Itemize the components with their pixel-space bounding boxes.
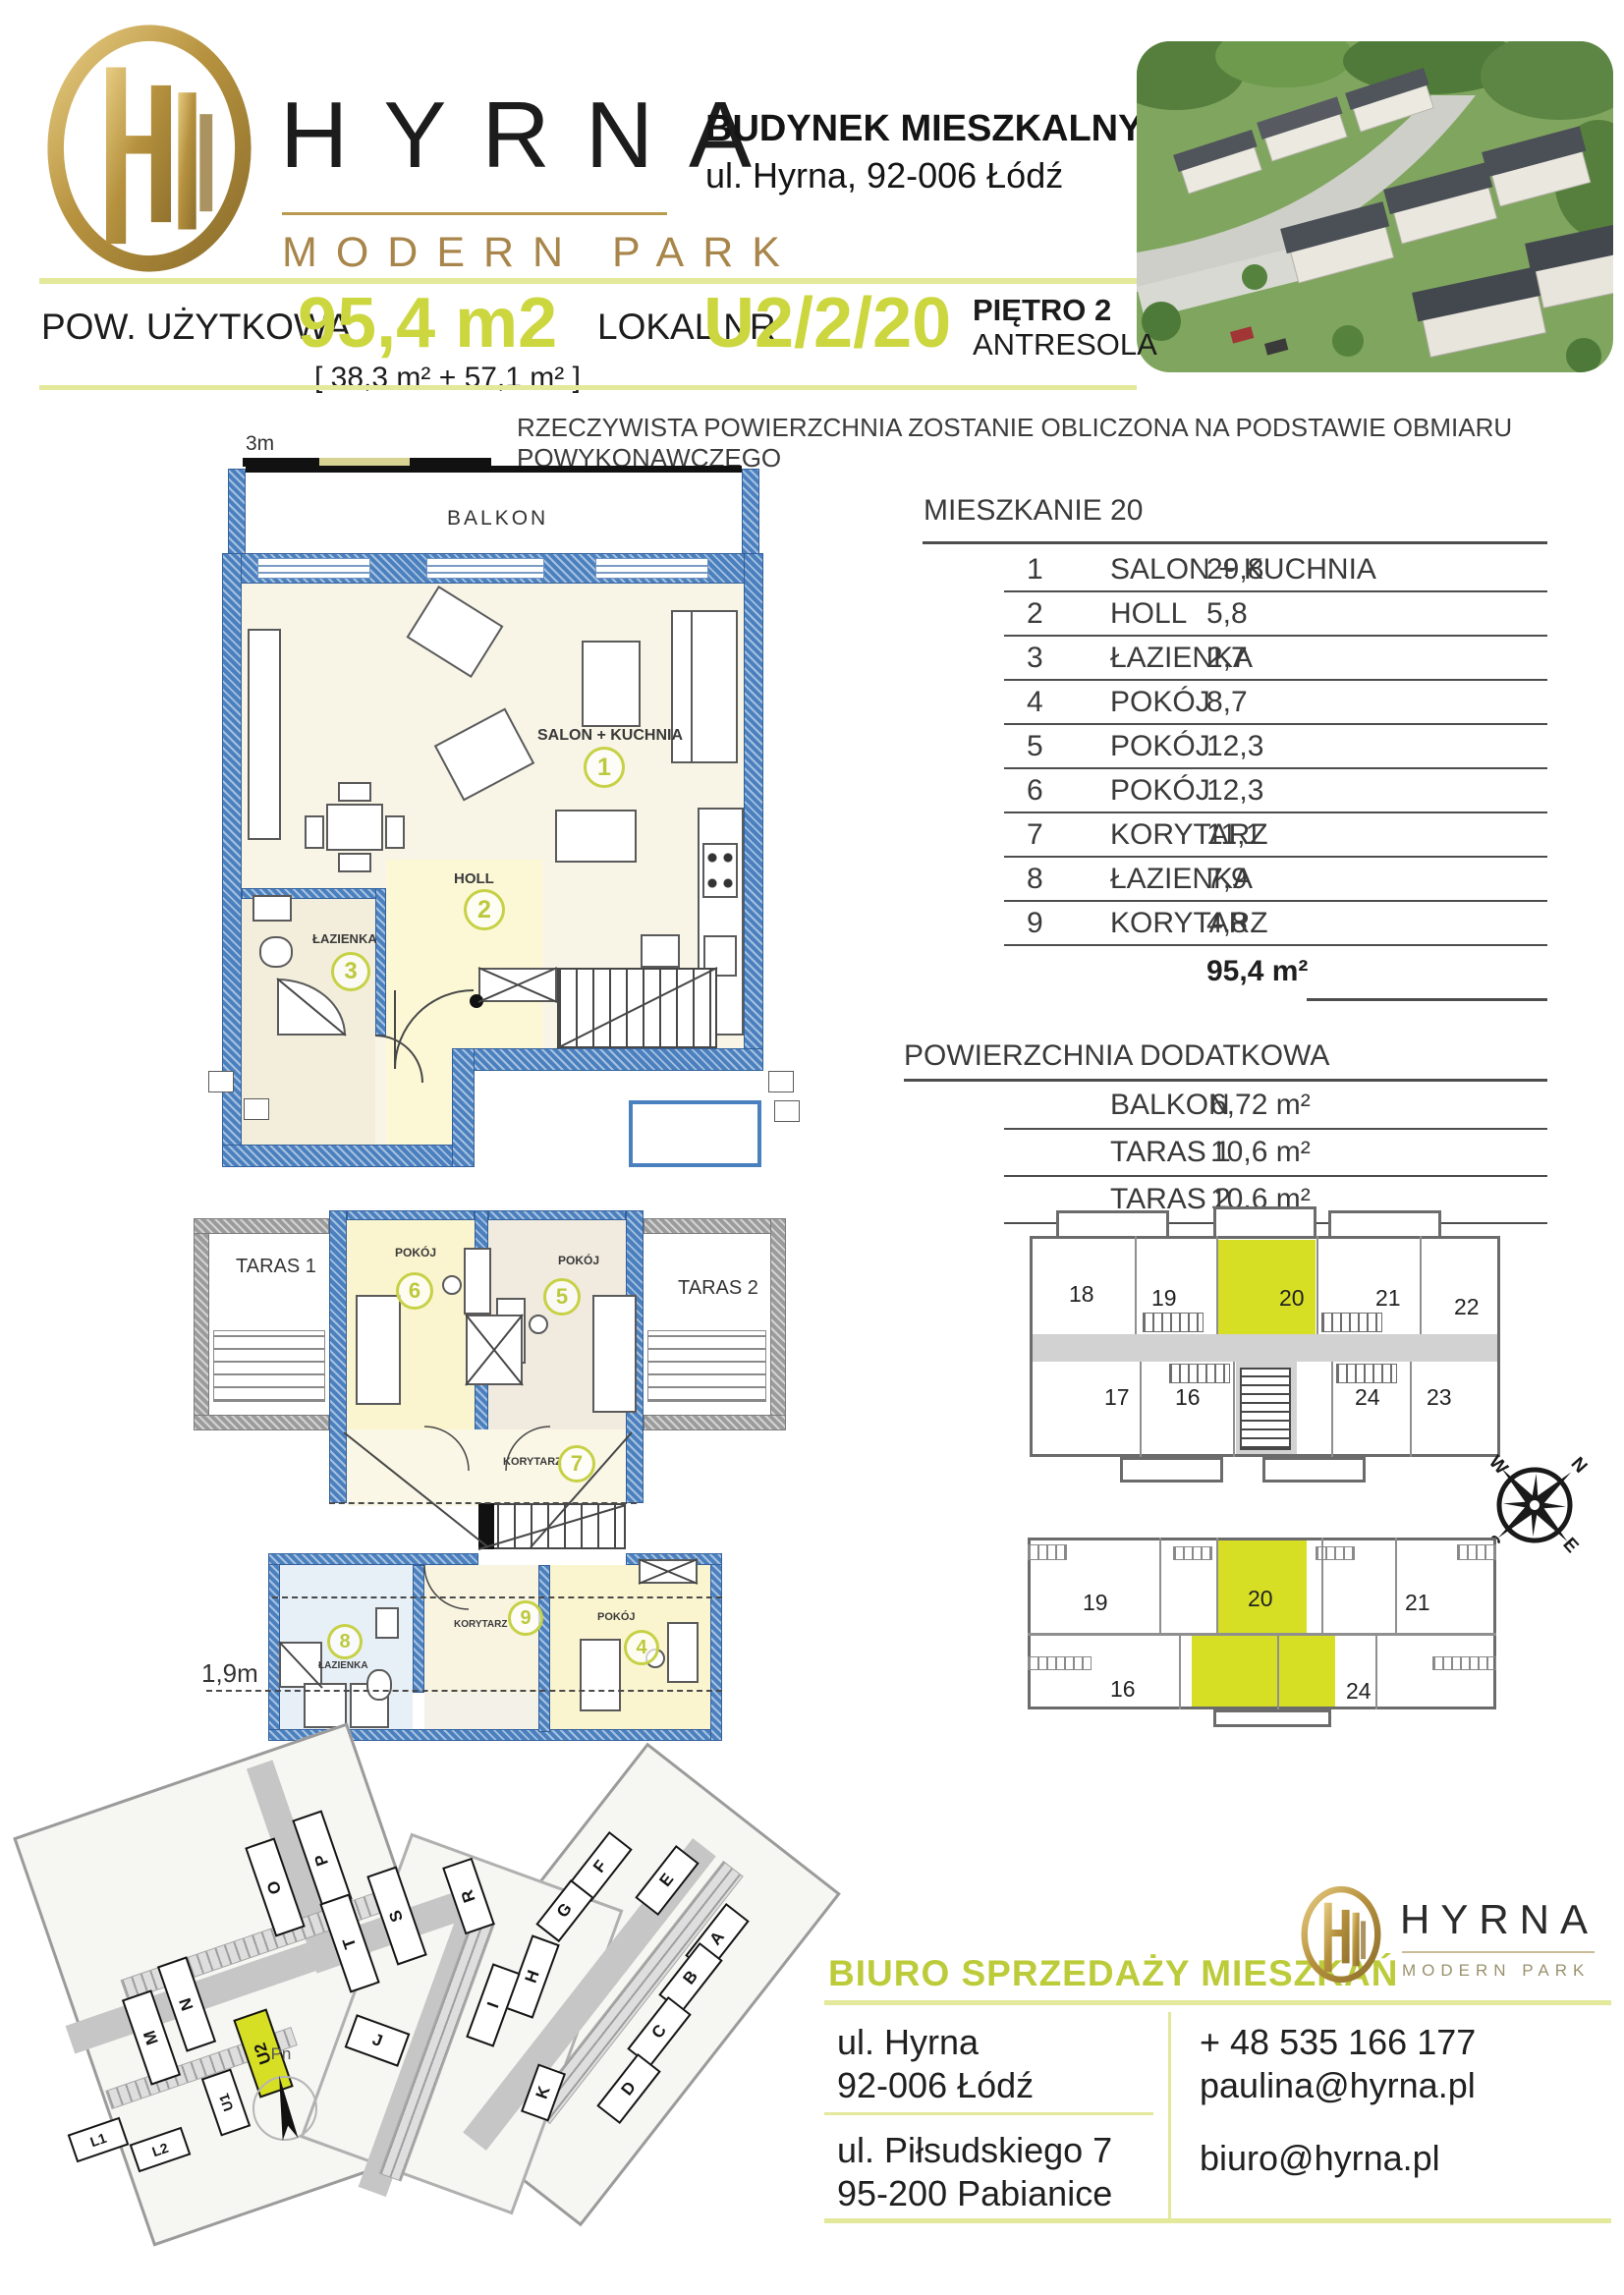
washbasin — [252, 895, 292, 922]
scalebar-label: 3m — [246, 432, 274, 456]
extra-area: 6,72 m² — [1210, 1089, 1311, 1122]
room-number: 2 — [464, 889, 505, 930]
table-rule — [1004, 856, 1547, 858]
section-line — [329, 1502, 637, 1504]
stair-landing — [478, 968, 557, 1002]
desk — [464, 1248, 491, 1315]
window — [257, 558, 370, 579]
row-area: 4,8 — [1206, 907, 1248, 940]
divider-top — [39, 278, 1137, 284]
korytarz7-label: KORYTARZ — [503, 1456, 562, 1468]
contact-email-paulina: paulina@hyrna.pl — [1200, 2065, 1476, 2106]
unit-number: 24 — [1346, 1678, 1372, 1705]
unit-stairs — [1143, 1313, 1204, 1332]
balkon-label: BALKON — [447, 507, 548, 531]
lazienka8-label: ŁAZIENKA — [318, 1660, 368, 1671]
chair — [338, 853, 371, 872]
row-area: 8,7 — [1206, 686, 1248, 719]
unit-number: 17 — [1104, 1384, 1130, 1411]
table-rule — [1004, 944, 1547, 946]
divider-bottom — [39, 385, 1137, 390]
partition — [1179, 1636, 1181, 1709]
partition — [1140, 1362, 1142, 1457]
partition — [1420, 1236, 1422, 1334]
mid-wall — [1028, 1633, 1496, 1636]
room-number: 8 — [327, 1624, 363, 1659]
row-name: POKÓJ — [1110, 686, 1210, 719]
table-rule — [904, 1079, 1547, 1082]
row-area: 7,9 — [1206, 863, 1248, 896]
pokoj4-label: POKÓJ — [597, 1611, 636, 1623]
table-total: 95,4 m² — [1206, 955, 1308, 988]
unit-number: 23 — [1427, 1384, 1452, 1411]
table-rule — [1004, 767, 1547, 769]
row-no: 8 — [1027, 863, 1043, 896]
stairwell-floor — [424, 1693, 538, 1729]
unit20-highlight — [1192, 1633, 1335, 1707]
unit-stairs — [1169, 1364, 1230, 1383]
row-no: 5 — [1027, 730, 1043, 763]
unit-number: 18 — [1069, 1281, 1094, 1308]
contact-address1-line2: 92-006 Łódź — [837, 2065, 1034, 2106]
north-label: Pn — [271, 2044, 292, 2063]
wardrobe — [466, 1315, 523, 1385]
wall — [194, 1218, 209, 1430]
footer-brand-tagline: MODERN PARK — [1402, 1961, 1590, 1981]
bed — [356, 1295, 401, 1405]
partition — [1375, 1636, 1377, 1709]
contact-rule-bottom — [824, 2218, 1611, 2223]
wardrobe — [639, 1559, 698, 1584]
room-number: 6 — [396, 1272, 433, 1310]
partition — [1216, 1538, 1218, 1633]
table-rule — [1004, 723, 1547, 725]
sideboard — [248, 629, 281, 840]
row-area: 12,3 — [1206, 774, 1263, 808]
balcony-railing — [1457, 1544, 1496, 1560]
unit-number: 24 — [1355, 1384, 1380, 1411]
coffee-table — [555, 810, 637, 863]
row-area: 29,8 — [1206, 553, 1263, 587]
holl-label: HOLL — [454, 870, 494, 887]
brand-tagline: MODERN PARK — [282, 229, 799, 277]
lazienka-label: ŁAZIENKA — [312, 931, 377, 946]
footer-logo — [1299, 1884, 1383, 1985]
table-rule — [1004, 1175, 1547, 1177]
floorplan-sheet: { "brand": {"name": "HYRNA", "tagline": … — [0, 0, 1624, 2295]
drain-box — [768, 1071, 794, 1092]
taras1-label: TARAS 1 — [236, 1256, 316, 1278]
partition — [1216, 1236, 1218, 1334]
balcony-tab — [1120, 1457, 1223, 1483]
contact-rule-top — [824, 2000, 1611, 2005]
window — [426, 558, 544, 579]
unit-number: 19 — [1083, 1590, 1108, 1616]
apartment-table-title: MIESZKANIE 20 — [924, 494, 1143, 528]
footer-brand-name: HYRNA — [1400, 1896, 1598, 1943]
site-block: L1 — [68, 2117, 130, 2163]
holl-floor — [386, 1048, 452, 1145]
balkon-edge — [246, 466, 742, 473]
unit-stairs — [1321, 1313, 1382, 1332]
row-area: 12,3 — [1206, 730, 1263, 763]
height-line — [206, 1690, 722, 1692]
row-area: 11,1 — [1206, 818, 1261, 852]
pokoj6-label: POKÓJ — [395, 1246, 436, 1259]
washbasin — [375, 1607, 399, 1639]
dining-table — [326, 804, 383, 851]
unit-number: 21 — [1405, 1590, 1430, 1616]
toilet — [366, 1669, 392, 1701]
wall — [228, 469, 246, 565]
room-number: 7 — [558, 1445, 595, 1483]
taras2-label: TARAS 2 — [678, 1277, 758, 1300]
desk — [667, 1622, 699, 1683]
row-no: 2 — [1027, 597, 1043, 631]
partition — [1159, 1538, 1161, 1633]
hyrna-logo-icon — [41, 20, 257, 277]
building-address: ul. Hyrna, 92-006 Łódź — [705, 155, 1063, 196]
balcony-tab — [1213, 1206, 1316, 1240]
stairs — [1240, 1368, 1291, 1450]
wall — [488, 1210, 626, 1220]
table-rule — [1004, 590, 1547, 592]
partition — [1410, 1362, 1412, 1457]
contact-phone: + 48 535 166 177 — [1200, 2022, 1476, 2063]
floor-label: PIĘTRO 2 — [973, 293, 1111, 328]
stairs — [557, 968, 717, 1048]
wall — [329, 1210, 347, 1503]
room-number: 9 — [508, 1600, 543, 1636]
aerial-photo-illustration — [1137, 41, 1613, 372]
corridor — [1033, 1334, 1497, 1362]
balcony-tab — [1262, 1457, 1366, 1483]
chair — [385, 815, 405, 849]
table-rule — [1004, 812, 1547, 813]
footer-brand-rule — [1402, 1951, 1595, 1953]
extra-table-title: POWIERZCHNIA DODATKOWA — [904, 1039, 1329, 1073]
wall — [268, 1553, 478, 1565]
north-arrow-icon: Pn — [244, 2042, 326, 2150]
holl-floor — [386, 860, 542, 1048]
balcony-railing — [1432, 1656, 1496, 1670]
chair — [305, 815, 324, 849]
room-number: 5 — [543, 1278, 581, 1315]
row-area: 2,7 — [1206, 642, 1248, 675]
wall — [375, 888, 386, 1036]
balcony-railing — [1173, 1546, 1212, 1560]
compass-e: E — [1558, 1534, 1582, 1556]
wall — [413, 1565, 424, 1693]
wall — [644, 1218, 786, 1234]
table-rule — [1004, 679, 1547, 681]
wall — [194, 1218, 329, 1234]
appliance — [641, 934, 680, 968]
bed — [592, 1295, 637, 1413]
stove — [702, 843, 738, 898]
pokoj5-label: POKÓJ — [558, 1254, 599, 1267]
room-number: 3 — [331, 952, 370, 991]
extra-area: 10,6 m² — [1210, 1136, 1311, 1169]
wall — [222, 1145, 475, 1167]
unit-number: 19 — [1151, 1285, 1177, 1312]
bed — [580, 1639, 621, 1711]
contact-address2-line2: 95-200 Pabianice — [837, 2173, 1112, 2214]
wall — [452, 1048, 475, 1167]
brand-rule — [282, 212, 667, 215]
korytarz9-label: KORYTARZ — [454, 1619, 507, 1630]
window — [595, 558, 708, 579]
wall — [644, 1415, 786, 1430]
contact-email-biuro: biuro@hyrna.pl — [1200, 2138, 1440, 2179]
shower — [279, 1642, 322, 1688]
lounge-chair — [582, 641, 641, 727]
unit-number: 22 — [1454, 1294, 1480, 1320]
bottom-tab — [1213, 1709, 1331, 1727]
row-name: POKÓJ — [1110, 730, 1210, 763]
disclaimer-text: RZECZYWISTA POWIERZCHNIA ZOSTANIE OBLICZ… — [517, 413, 1624, 474]
row-name: POKÓJ — [1110, 774, 1210, 808]
wall — [538, 1565, 550, 1732]
unit-number: 20 — [1248, 1586, 1273, 1612]
chair — [529, 1315, 548, 1334]
contact-rule-mid — [824, 2112, 1153, 2115]
toilet — [259, 936, 293, 968]
row-name: HOLL — [1110, 597, 1187, 631]
row-no: 9 — [1027, 907, 1043, 940]
unit-number: 21 — [1375, 1285, 1401, 1312]
wall — [347, 1210, 475, 1220]
contact-divider — [1168, 2012, 1171, 2222]
taras-railing — [647, 1330, 766, 1402]
row-no: 4 — [1027, 686, 1043, 719]
wall — [452, 1048, 763, 1071]
area-value: 95,4 m2 — [298, 283, 557, 364]
table-rule — [1004, 900, 1547, 902]
hyrna-logo-icon — [1299, 1884, 1383, 1985]
porch — [629, 1100, 761, 1167]
unit-number: 16 — [1175, 1384, 1201, 1411]
row-no: 1 — [1027, 553, 1043, 587]
contact-address2-line1: ul. Piłsudskiego 7 — [837, 2130, 1112, 2171]
partition — [1135, 1236, 1137, 1334]
wall — [770, 1218, 786, 1430]
row-no: 3 — [1027, 642, 1043, 675]
taras-railing — [213, 1330, 325, 1402]
room-number: 1 — [584, 747, 625, 788]
aerial-photo — [1137, 41, 1613, 372]
drain-box — [208, 1071, 234, 1092]
row-no: 6 — [1027, 774, 1043, 808]
floor-sublabel: ANTRESOLA — [973, 327, 1157, 363]
wall — [710, 1553, 722, 1741]
unit-number: 16 — [1110, 1676, 1136, 1703]
drain-box — [774, 1100, 800, 1122]
balcony-railing — [1028, 1656, 1092, 1670]
wall — [194, 1415, 329, 1430]
partition — [1233, 1362, 1235, 1457]
drain-box — [244, 1098, 269, 1120]
stair-edge — [478, 1503, 494, 1549]
building-title: BUDYNEK MIESZKALNY U2 — [705, 108, 1201, 150]
unit-stairs — [1336, 1364, 1397, 1383]
partition — [1331, 1362, 1333, 1457]
partition — [1395, 1538, 1397, 1633]
salon-label: SALON + KUCHNIA — [537, 727, 683, 745]
chair — [442, 1275, 462, 1295]
table-rule — [1307, 998, 1547, 1001]
wall — [744, 553, 763, 1071]
balcony-railing — [1316, 1546, 1355, 1560]
chair — [338, 782, 371, 802]
partition — [1277, 1636, 1279, 1709]
stairs — [478, 1503, 626, 1549]
room-number: 4 — [624, 1630, 659, 1665]
section-line — [272, 1596, 722, 1598]
compass-n: N — [1567, 1453, 1592, 1477]
table-rule — [923, 541, 1547, 544]
row-area: 5,8 — [1206, 597, 1248, 631]
height-label: 1,9m — [201, 1658, 258, 1689]
balcony-railing — [1028, 1544, 1067, 1560]
contact-address1-line1: ul. Hyrna — [837, 2022, 979, 2063]
logo-mark — [41, 20, 257, 277]
unit-number: 20 — [1279, 1285, 1305, 1312]
table-rule — [1004, 1128, 1547, 1130]
row-no: 7 — [1027, 818, 1043, 852]
partition — [1316, 1236, 1318, 1334]
unit-number: U2/2/20 — [703, 283, 951, 364]
stair-start-dot — [470, 994, 483, 1008]
wall — [742, 469, 759, 565]
table-rule — [1004, 635, 1547, 637]
